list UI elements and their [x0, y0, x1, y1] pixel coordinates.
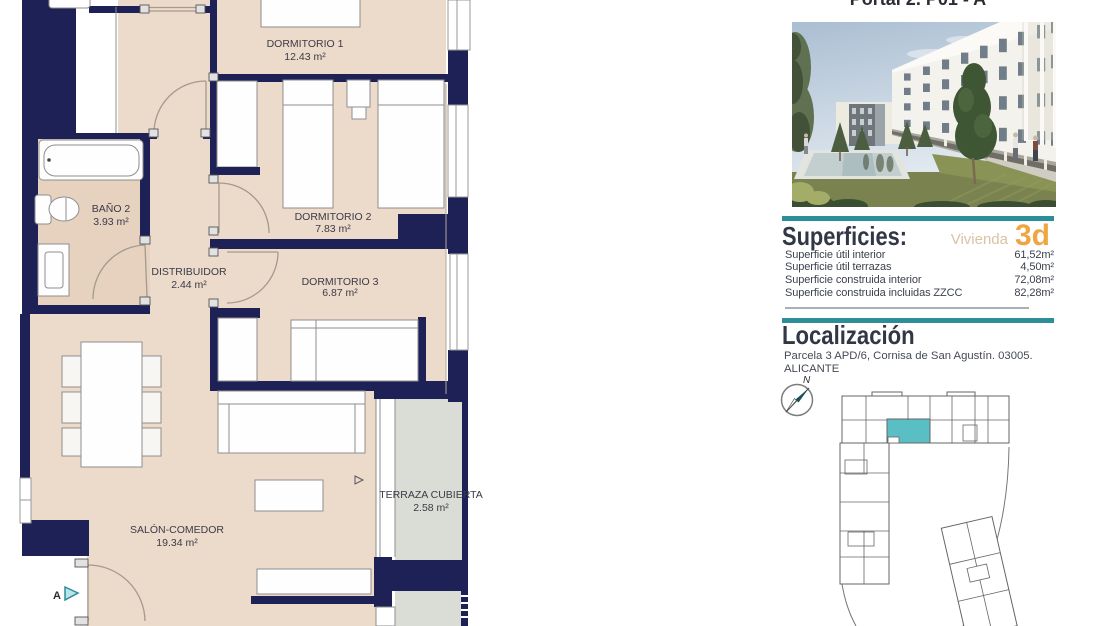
svg-text:2.58 m²: 2.58 m² — [413, 502, 449, 514]
svg-text:TERRAZA CUBIERTA: TERRAZA CUBIERTA — [379, 489, 482, 501]
svg-text:12.43 m²: 12.43 m² — [284, 51, 326, 63]
svg-text:BAÑO 2: BAÑO 2 — [92, 202, 131, 215]
svg-text:DORMITORIO 1: DORMITORIO 1 — [267, 38, 344, 50]
svg-text:DISTRIBUIDOR: DISTRIBUIDOR — [151, 266, 227, 278]
svg-text:6.87 m²: 6.87 m² — [322, 287, 358, 299]
svg-text:SALÓN-COMEDOR: SALÓN-COMEDOR — [130, 523, 224, 536]
svg-text:DORMITORIO 2: DORMITORIO 2 — [295, 211, 372, 223]
svg-text:2.44 m²: 2.44 m² — [171, 279, 207, 291]
svg-text:3.93 m²: 3.93 m² — [93, 216, 129, 228]
svg-text:A: A — [53, 590, 61, 602]
svg-text:19.34 m²: 19.34 m² — [156, 537, 198, 549]
svg-text:7.83 m²: 7.83 m² — [315, 223, 351, 235]
svg-text:N: N — [803, 375, 811, 386]
